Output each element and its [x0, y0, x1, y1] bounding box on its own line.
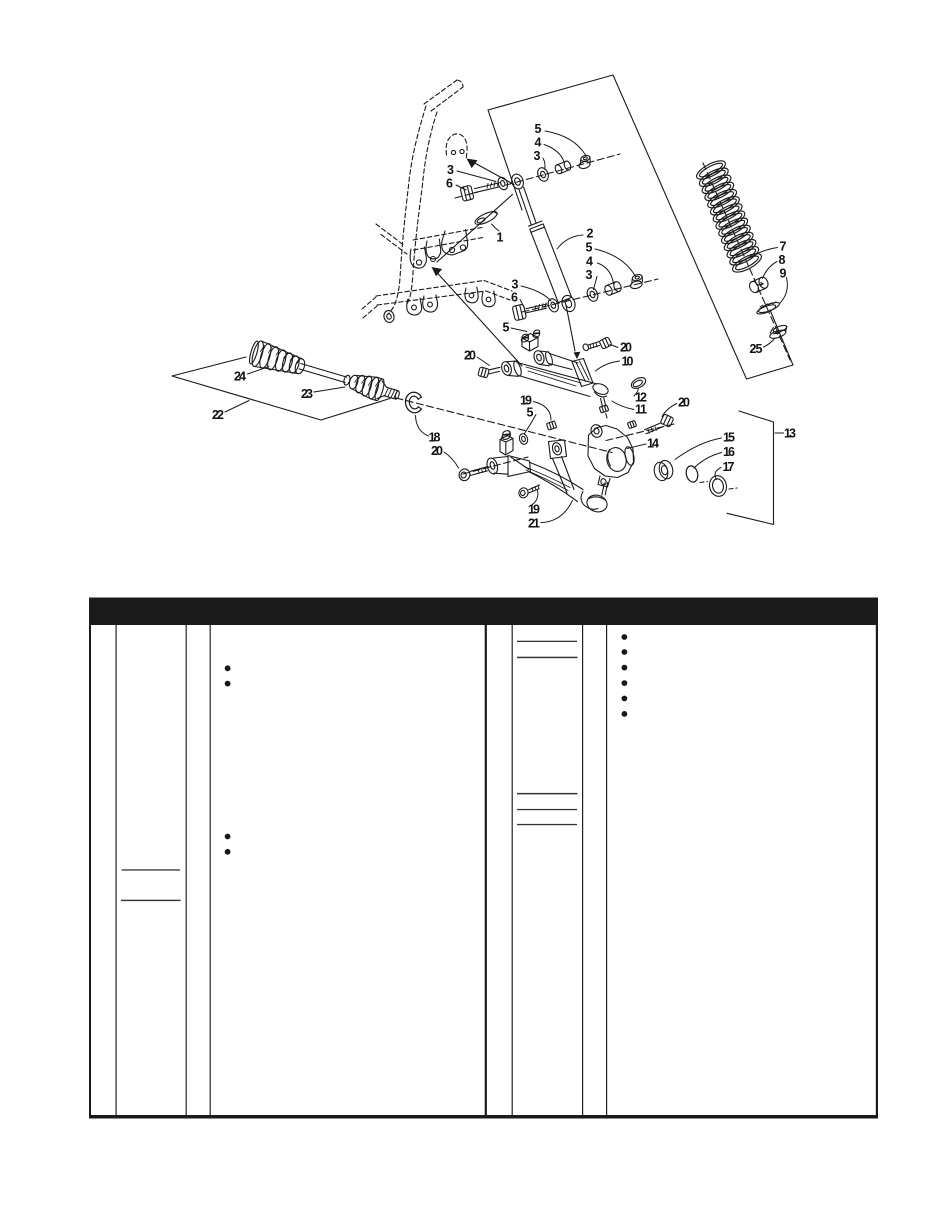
svg-text:22: 22	[212, 408, 224, 422]
svg-text:1: 1	[497, 231, 504, 245]
svg-text:16: 16	[723, 445, 735, 459]
svg-text:23: 23	[301, 387, 313, 401]
svg-text:7: 7	[780, 240, 787, 254]
svg-text:24: 24	[234, 370, 246, 384]
svg-text:4: 4	[535, 136, 542, 150]
svg-text:6: 6	[446, 177, 453, 191]
svg-text:20: 20	[431, 444, 443, 458]
svg-text:3: 3	[512, 278, 519, 292]
svg-text:5: 5	[527, 406, 534, 420]
svg-text:5: 5	[503, 321, 510, 335]
svg-text:3: 3	[447, 163, 454, 177]
svg-text:10: 10	[622, 355, 634, 369]
svg-text:3: 3	[586, 268, 593, 282]
svg-text:8: 8	[779, 253, 786, 267]
svg-text:6: 6	[511, 291, 518, 305]
svg-text:17: 17	[723, 460, 735, 474]
svg-text:5: 5	[535, 122, 542, 136]
svg-text:20: 20	[678, 396, 690, 410]
svg-text:21: 21	[528, 517, 540, 531]
svg-text:5: 5	[586, 241, 593, 255]
svg-text:25: 25	[750, 342, 763, 356]
svg-text:13: 13	[784, 427, 796, 441]
svg-text:2: 2	[587, 227, 594, 241]
svg-text:18: 18	[429, 431, 441, 445]
svg-text:20: 20	[464, 349, 476, 363]
svg-text:20: 20	[620, 341, 632, 355]
svg-text:15: 15	[723, 431, 735, 445]
svg-text:14: 14	[647, 437, 659, 451]
svg-text:9: 9	[780, 267, 787, 281]
svg-text:3: 3	[534, 149, 541, 163]
svg-text:4: 4	[586, 255, 593, 269]
svg-text:11: 11	[635, 403, 647, 417]
svg-text:19: 19	[528, 503, 540, 517]
